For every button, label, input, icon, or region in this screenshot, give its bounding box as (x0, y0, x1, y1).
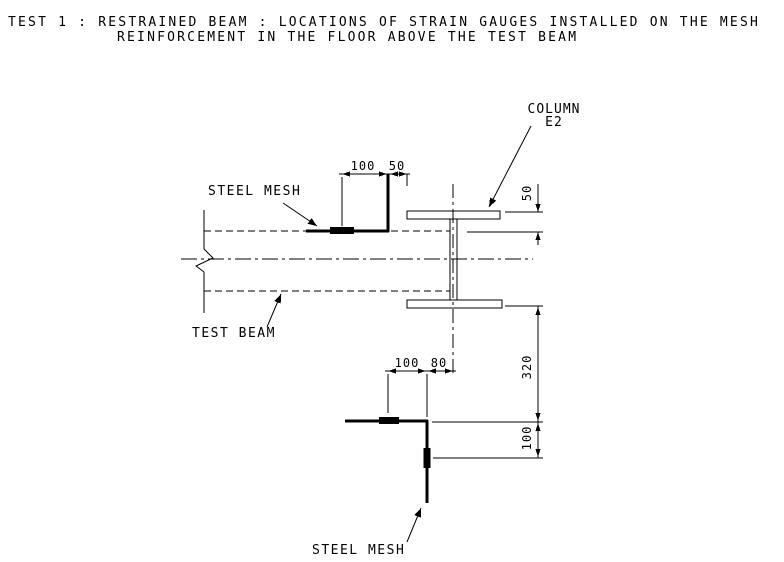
label-column-id: E2 (523, 116, 585, 129)
dimension-lines (339, 172, 543, 459)
beam-break-zigzag (196, 249, 213, 272)
label-test-beam: TEST BEAM (192, 327, 276, 340)
arrowhead (536, 204, 541, 212)
label-column: COLUMN E2 (523, 103, 585, 129)
dim-text-right-320: 320 (521, 349, 533, 385)
label-steel-mesh-top: STEEL MESH (208, 185, 301, 198)
strain-gauge-top (330, 227, 354, 234)
strain-gauge-bottom-horizontal (379, 417, 399, 424)
dim-text-bottom-80: 80 (425, 357, 453, 369)
leader-test-beam (267, 294, 281, 327)
leader-lines (267, 126, 531, 542)
strain-gauge-bottom-vertical (424, 448, 431, 468)
steel-mesh-top-bars (306, 174, 389, 234)
arrowhead (418, 369, 426, 374)
arrowhead (536, 307, 541, 315)
arrowhead (342, 172, 350, 177)
test-beam-outline (181, 210, 533, 313)
leader-steel-mesh-top (283, 203, 317, 226)
dim-text-right-100: 100 (521, 420, 533, 456)
arrowhead (536, 449, 541, 457)
dim-text-top-100: 100 (345, 160, 381, 172)
arrowhead (379, 172, 387, 177)
arrowhead (536, 413, 541, 421)
arrowhead (536, 232, 541, 240)
arrowhead (536, 423, 541, 431)
dim-text-top-50: 50 (383, 160, 411, 172)
column-bottom-flange (407, 300, 502, 308)
dim-text-bottom-100: 100 (389, 357, 425, 369)
drawing-title-line2: REINFORCEMENT IN THE FLOOR ABOVE THE TES… (117, 31, 578, 44)
dim-text-right-50: 50 (521, 175, 533, 211)
label-steel-mesh-bottom: STEEL MESH (312, 544, 405, 557)
leader-steel-mesh-bottom (407, 508, 421, 542)
cad-drawing-page: TEST 1 : RESTRAINED BEAM : LOCATIONS OF … (0, 0, 784, 562)
drawing-title-line1: TEST 1 : RESTRAINED BEAM : LOCATIONS OF … (8, 16, 760, 29)
drawing-canvas (0, 0, 784, 562)
column-section (407, 184, 502, 373)
steel-mesh-bottom-bars (345, 417, 431, 503)
